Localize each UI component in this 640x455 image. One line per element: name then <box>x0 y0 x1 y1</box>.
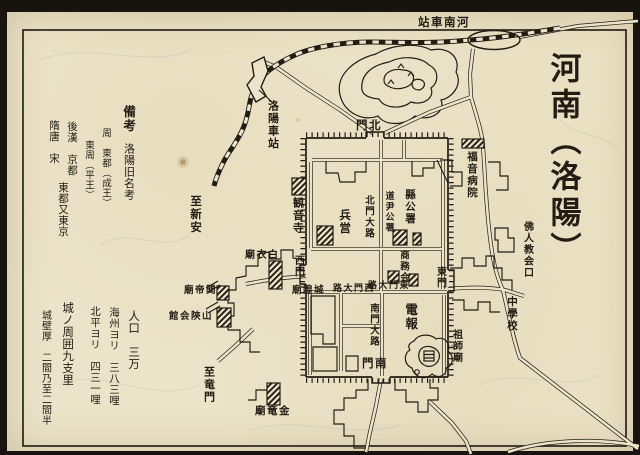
chenghuang-temple-label: 廟隍城 <box>292 286 325 296</box>
guandi-temple-label: 廟帝関 <box>184 286 217 296</box>
population: 人口 三万 <box>128 310 140 370</box>
west-gate-label: 西門 <box>292 255 303 278</box>
railway-track <box>214 28 560 186</box>
county-office-label: 縣公署 <box>404 189 415 225</box>
middle-school-label: 中學校 <box>506 296 517 332</box>
baiyi-temple-label: 廟衣白 <box>245 251 280 262</box>
telegraph-office-label: 電報 <box>404 303 417 331</box>
south-gate-label: 門南 <box>362 357 388 369</box>
jinlong-building <box>267 383 280 405</box>
note-gokan: 後漢 京都 <box>66 121 77 176</box>
soshi-temple-label: 祖師廟 <box>450 329 461 364</box>
shanshan-building <box>217 308 231 327</box>
guandi-building <box>217 286 229 300</box>
station-henan-label: 站車南河 <box>418 16 470 28</box>
shanshan-hall-label: 館会陝山 <box>169 312 213 322</box>
note-dongzhou: 東周（平王） <box>83 140 93 200</box>
remarks-title: 備考 <box>122 105 135 133</box>
pagoda-symbol <box>424 351 434 361</box>
dist-haizhou: 海州ヨリ 三八三哩 <box>108 307 119 406</box>
french-church-label: 佛人教会口 <box>521 221 532 279</box>
note-zhou: 周 東都（成王） <box>100 128 110 208</box>
intendant-office-label: 道尹公署 <box>383 191 392 233</box>
hospital-building <box>462 139 484 148</box>
barracks-label: 兵営 <box>339 209 351 235</box>
map-title: 河南（洛陽） <box>546 52 579 268</box>
south-gate-avenue-label: 南門大路 <box>368 303 378 347</box>
contour-hills <box>339 45 458 123</box>
station-luoyang-label: 洛陽車站 <box>267 100 279 150</box>
chamber-of-commerce-label: 商務会 <box>398 250 408 283</box>
to-longmen-label: 至竜門 <box>203 366 215 404</box>
suburb-outlines <box>206 250 512 448</box>
remarks-subtitle: 洛陽旧名考 <box>123 143 135 201</box>
wall-thickness: 城壁厚 二間乃至二間半 <box>39 310 50 426</box>
jinlong-temple-label: 廟竜金 <box>255 406 291 417</box>
map-photo: 河南（洛陽） 站車南河洛陽車站至新安観音寺福音病院門北西門東門門南北門大路路大門… <box>0 0 640 455</box>
kannonji-temple-label: 観音寺 <box>292 197 304 235</box>
east-gate-label: 東門 <box>434 266 445 289</box>
gospel-hospital-label: 福音病院 <box>466 151 477 199</box>
baiyi-building <box>269 261 282 289</box>
north-gate-avenue-label: 北門大路 <box>363 195 373 239</box>
county-building <box>413 233 421 245</box>
dist-beiping: 北平ヨリ 四三一哩 <box>89 306 100 405</box>
east-gate-avenue-label: 路大門東 <box>368 282 410 291</box>
north-gate-label: 門北 <box>356 119 382 131</box>
note-todo: 東都又東京 <box>57 182 68 237</box>
barracks-building <box>317 226 333 245</box>
note-zuito: 隋唐 宋 <box>48 120 59 164</box>
to-xinan-label: 至新安 <box>190 195 202 234</box>
city-circumference: 城ノ周囲九支里 <box>62 302 74 386</box>
east-avenue-building <box>409 274 418 286</box>
intendant-building <box>393 230 407 245</box>
kannonji-building <box>292 178 306 195</box>
